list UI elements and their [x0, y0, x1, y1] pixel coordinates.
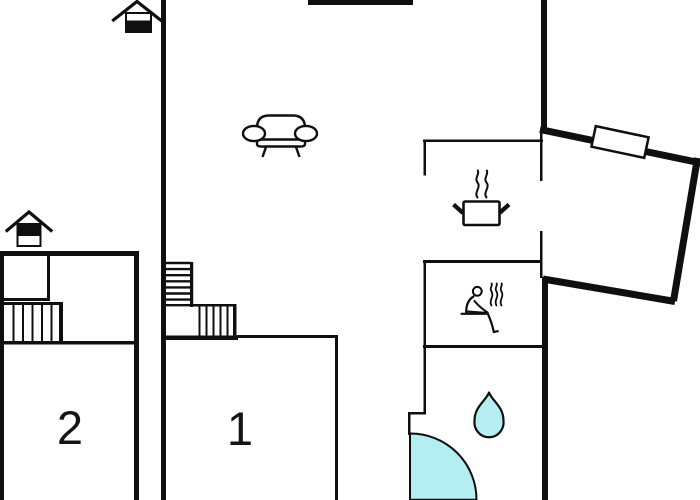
wall-sauna-top: [423, 260, 542, 263]
wall-angled-dining-bottom: [543, 279, 675, 302]
angled-exterior-walls: [540, 130, 700, 302]
wall-kitchen-right-upper: [540, 131, 543, 181]
stairs-center: [166, 262, 237, 336]
window: [591, 126, 648, 158]
wall-room1-top-thick: [161, 336, 238, 341]
wall-room1-top-thin: [237, 335, 338, 338]
wall-closet-bottom: [4, 298, 50, 301]
wall-right-lower: [542, 277, 548, 500]
sauna-person-icon: [462, 284, 503, 333]
wall-room2-upper-divider: [0, 341, 139, 345]
wall-kitchen-left-upper: [424, 140, 427, 176]
door-swing-arc: [410, 433, 477, 499]
wall-top-segment: [308, 0, 413, 5]
floor-plan: 2 1: [0, 0, 700, 500]
room1-label: 1: [210, 405, 270, 452]
wall-left: [0, 251, 4, 500]
floor-plan-drawing: [0, 0, 700, 500]
room2-label: 2: [40, 404, 100, 451]
cooking-pot-icon: [454, 171, 510, 226]
wall-kitchen-top: [423, 140, 543, 143]
stairs-left: [4, 302, 63, 342]
wall-room2-right: [134, 251, 139, 500]
wall-main-vertical: [161, 0, 166, 500]
steam-lines: [476, 171, 487, 198]
water-drop-icon: [474, 393, 503, 438]
sofa-icon: [243, 116, 317, 158]
house-lower-level-filled-icon: [114, 2, 161, 33]
door-jamb-horizontal: [408, 412, 426, 415]
wall-room1-right: [335, 337, 338, 500]
door-jamb-vertical: [408, 412, 411, 435]
wall-room2-top: [0, 251, 139, 256]
house-upper-level-filled-icon: [7, 212, 51, 246]
wall-right-upper: [541, 0, 547, 131]
sauna-steam-lines: [491, 284, 503, 306]
wall-angled-right-side: [674, 158, 698, 301]
wall-closet-right: [47, 256, 50, 301]
wall-kitchen-left-lower: [424, 260, 427, 413]
wall-kitchen-right-lower: [540, 231, 543, 278]
wall-bathroom-top: [423, 345, 542, 348]
